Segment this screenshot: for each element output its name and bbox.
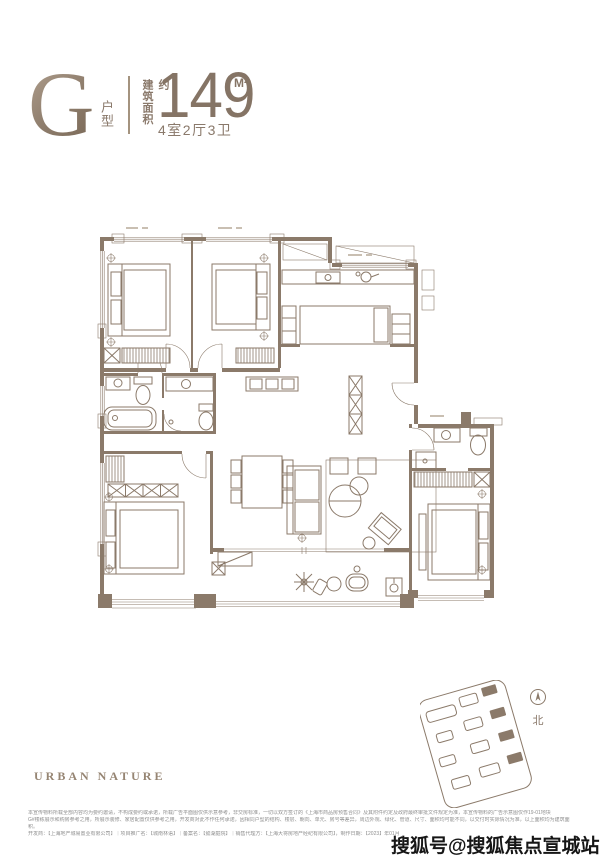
header-divider xyxy=(128,76,130,134)
floor-plan-drawing xyxy=(78,218,528,630)
north-compass-icon xyxy=(529,688,547,706)
disclaimer-text: 本宣传物料所载全部内容均为要约邀请，不构成要约或承诺，所载广告平面图仅供示意参考… xyxy=(28,810,578,838)
north-label: 北 xyxy=(527,712,549,728)
north-indicator: 北 xyxy=(527,688,549,728)
disclaimer-line-2: G#楼栋展示和购房参考之用，所展示装修、家居配置仅供参考之用，开发商对此不作任何… xyxy=(28,817,578,824)
brand-logo-text: URBAN NATURE xyxy=(34,769,165,784)
area-unit: M² xyxy=(234,76,248,90)
disclaimer-line-3: 积。 xyxy=(28,824,578,831)
rooms-summary: 4室2厅3卫 xyxy=(158,120,232,140)
disclaimer-line-1: 本宣传物料所载全部内容均为要约邀请，不构成要约或承诺，所载广告平面图仅供示意参考… xyxy=(28,810,578,817)
unit-type-suffix: 户型 xyxy=(99,100,114,128)
sohu-watermark: 搜狐号@搜狐焦点宣城站 xyxy=(391,835,600,859)
unit-type-letter: G xyxy=(28,58,94,150)
floorplan-page: G 户型 建筑面积约 149 M² 4室2厅3卫 xyxy=(0,0,602,865)
area-value: 149 xyxy=(157,63,255,127)
floor-plan-icon xyxy=(78,218,528,630)
